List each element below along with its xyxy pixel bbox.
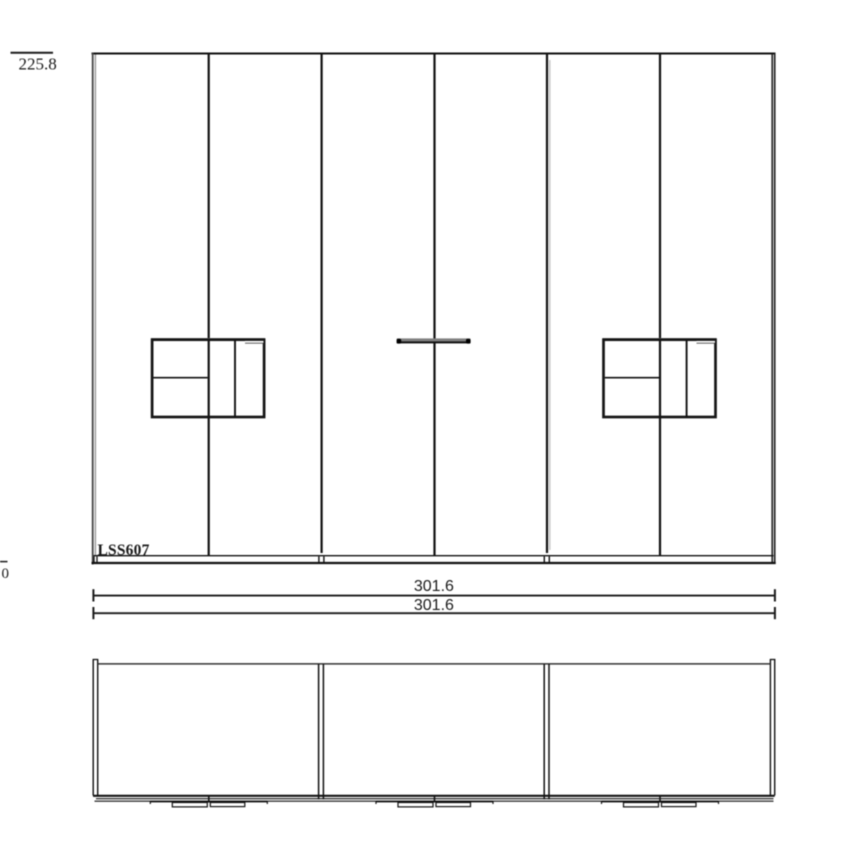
svg-text:301.6: 301.6 [414, 578, 454, 595]
svg-text:301.6: 301.6 [414, 597, 454, 614]
svg-text:225.8: 225.8 [19, 54, 57, 73]
svg-text:LSS607: LSS607 [98, 542, 150, 559]
svg-text:0: 0 [2, 566, 10, 582]
